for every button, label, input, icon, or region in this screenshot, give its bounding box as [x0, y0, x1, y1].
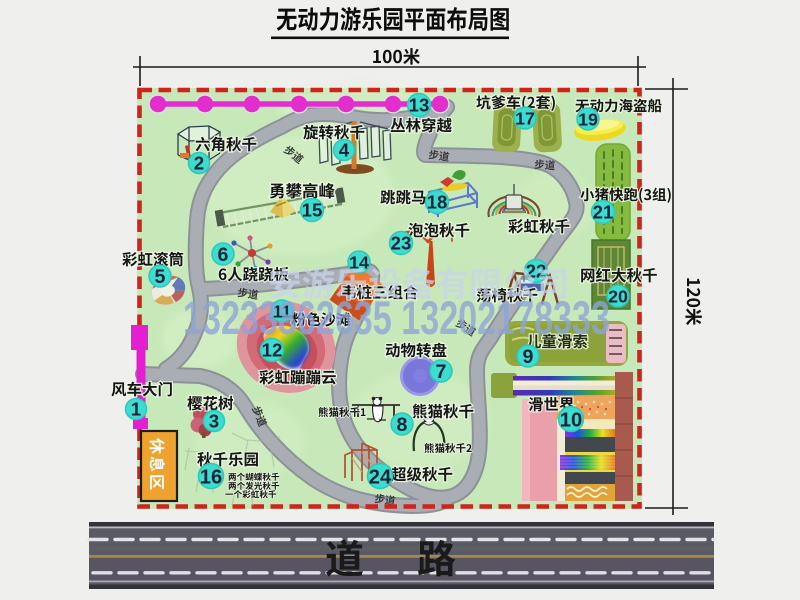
svg-text:3: 3	[209, 411, 219, 432]
svg-text:2: 2	[194, 153, 204, 174]
svg-text:7: 7	[436, 361, 447, 383]
svg-text:10: 10	[560, 409, 582, 431]
svg-text:24: 24	[369, 466, 392, 488]
svg-text:1: 1	[131, 399, 141, 420]
svg-text:17: 17	[515, 108, 535, 128]
svg-text:16: 16	[200, 466, 222, 488]
svg-text:6: 6	[218, 244, 229, 266]
svg-text:18: 18	[427, 192, 448, 213]
svg-text:13: 13	[409, 95, 430, 116]
svg-text:15: 15	[302, 200, 323, 221]
svg-text:19: 19	[578, 109, 598, 129]
svg-text:4: 4	[339, 140, 350, 161]
svg-text:13233862635 13202178333: 13233862635 13202178333	[183, 291, 610, 344]
svg-text:20: 20	[608, 286, 628, 306]
svg-text:21: 21	[593, 202, 614, 223]
svg-text:23: 23	[391, 233, 412, 254]
svg-text:9: 9	[523, 346, 534, 368]
svg-text:5: 5	[155, 266, 166, 288]
svg-text:8: 8	[397, 414, 408, 436]
